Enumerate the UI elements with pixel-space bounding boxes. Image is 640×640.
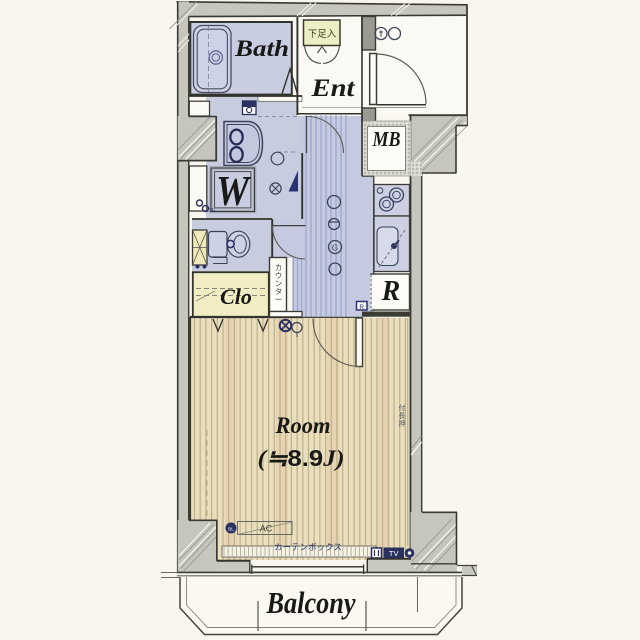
svg-text:Clo: Clo [220, 284, 252, 309]
svg-text:R: R [359, 304, 364, 311]
svg-text:2E: 2E [209, 208, 216, 214]
svg-text:Bath: Bath [234, 36, 289, 61]
svg-text:Room: Room [275, 413, 331, 438]
svg-text:BL: BL [228, 527, 234, 532]
svg-text:カウンター: カウンター [275, 263, 283, 304]
svg-text:TV: TV [389, 549, 399, 558]
svg-text:カーテンボックス: カーテンボックス [274, 542, 342, 552]
svg-text:Ent: Ent [310, 75, 355, 102]
svg-text:(≒8.9J): (≒8.9J) [258, 445, 345, 471]
svg-text:R: R [381, 276, 401, 307]
svg-text:下足入: 下足入 [308, 29, 337, 40]
svg-text:AC: AC [260, 524, 273, 534]
svg-text:MB: MB [372, 127, 401, 151]
svg-text:付長押: 付長押 [399, 403, 406, 428]
svg-text:G: G [332, 244, 338, 253]
svg-text:W: W [216, 169, 251, 215]
svg-text:Balcony: Balcony [266, 585, 356, 620]
